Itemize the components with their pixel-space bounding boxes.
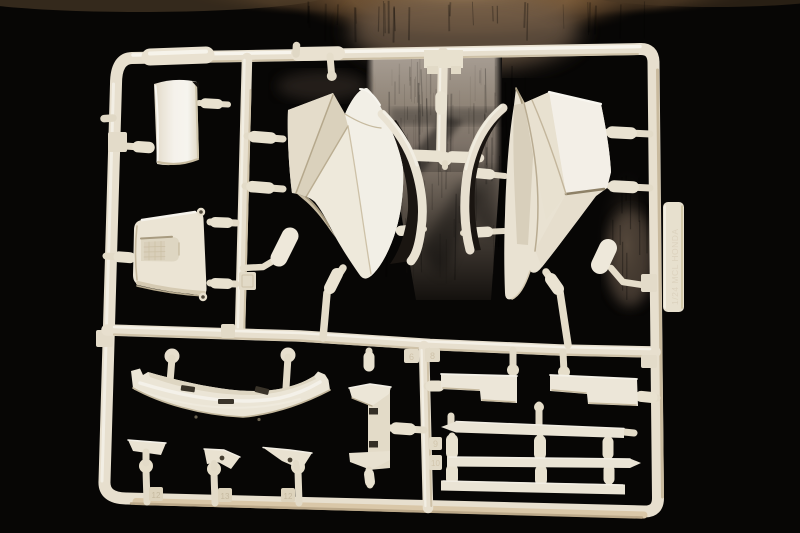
svg-text:13: 13	[221, 492, 230, 501]
svg-text:10: 10	[431, 459, 440, 468]
svg-text:1/24 MCL HONDA: 1/24 MCL HONDA	[670, 228, 680, 305]
svg-text:12: 12	[152, 491, 161, 500]
svg-text:8: 8	[430, 351, 435, 361]
svg-text:12: 12	[284, 492, 293, 501]
svg-text:9: 9	[433, 439, 438, 449]
svg-text:6: 6	[409, 352, 414, 362]
